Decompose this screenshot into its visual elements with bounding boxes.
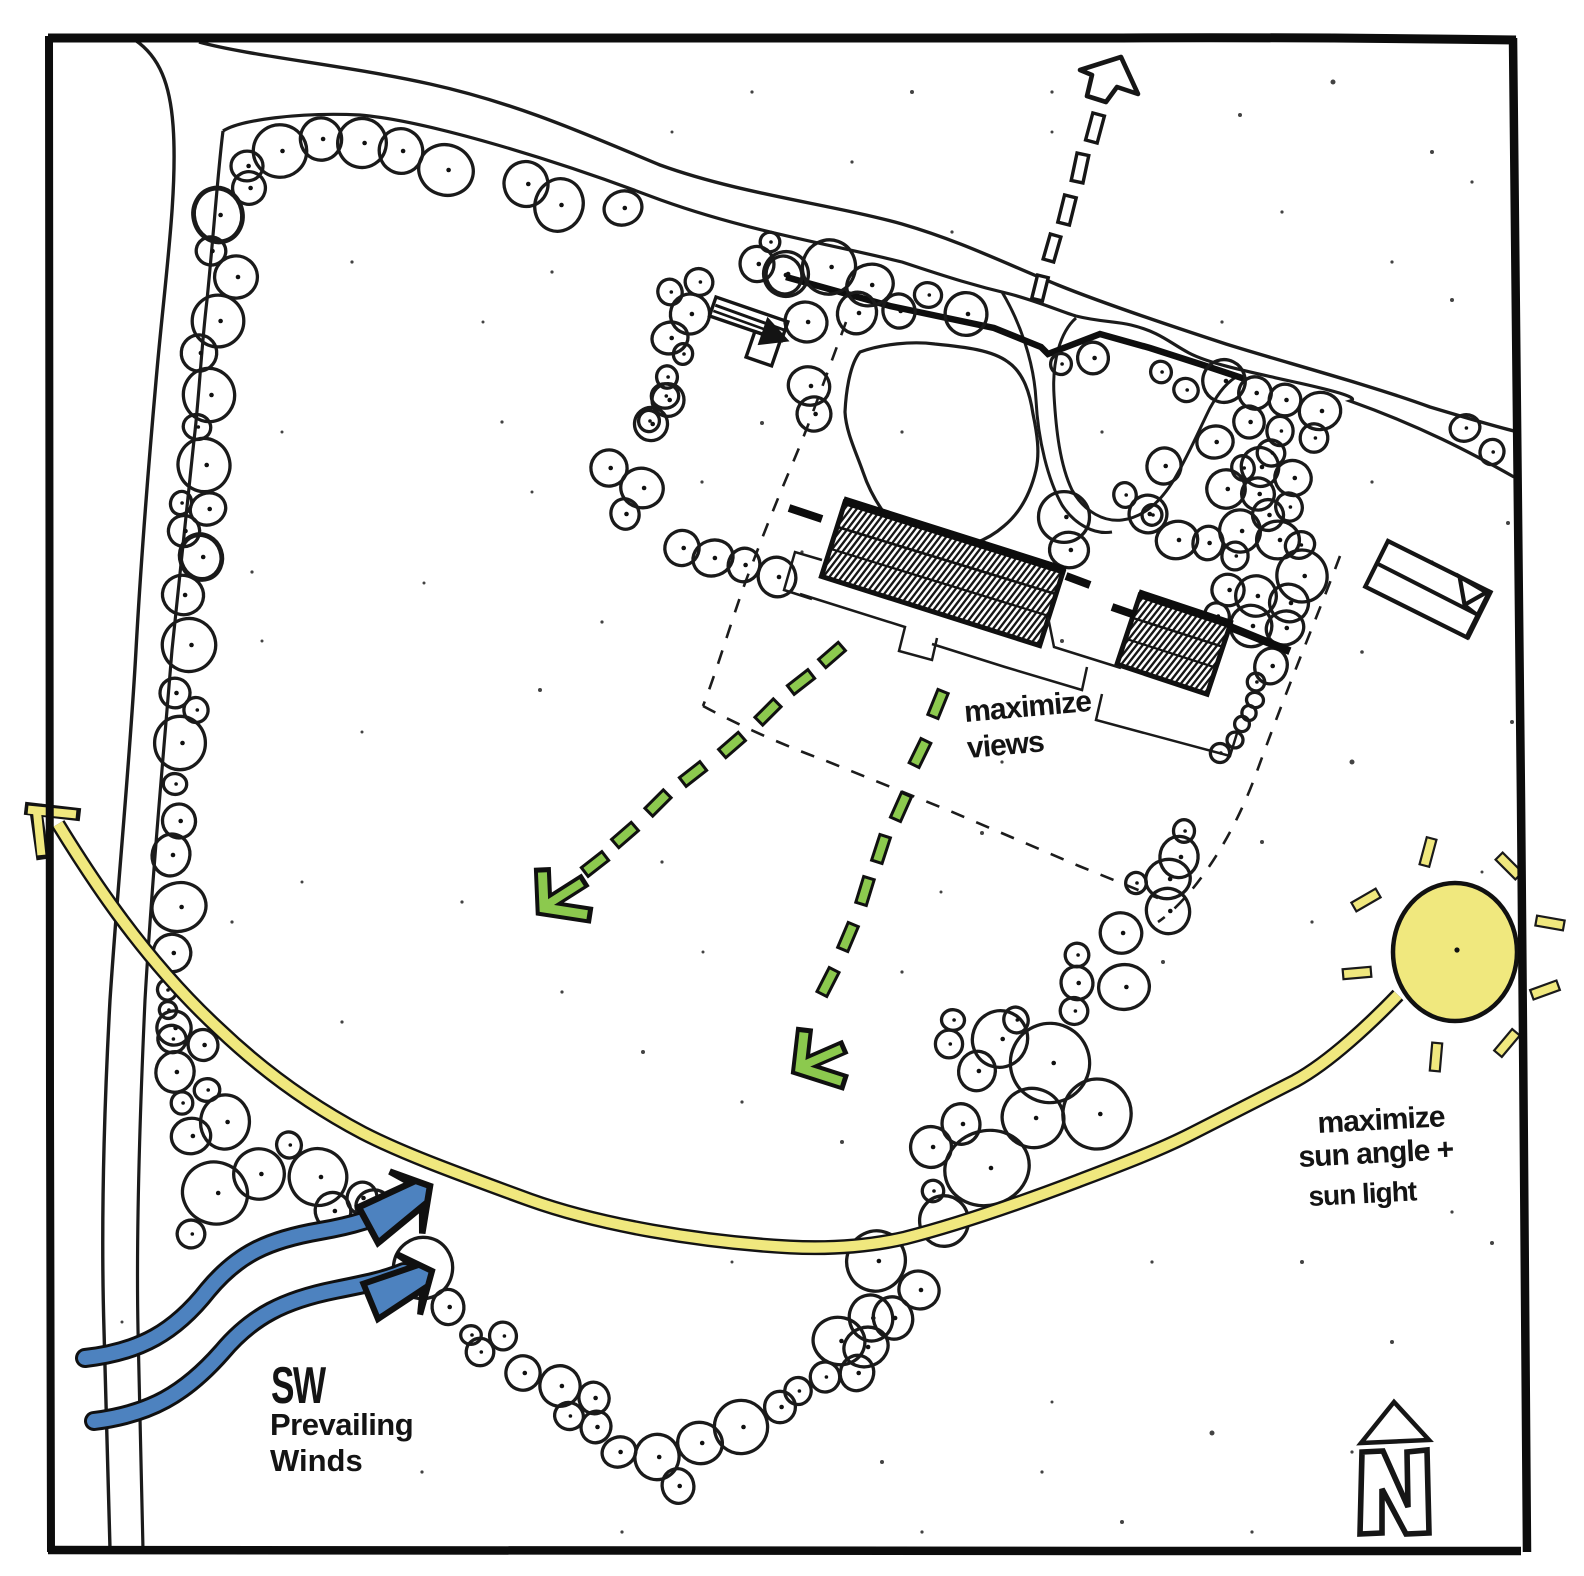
svg-text:sun light: sun light — [1308, 1175, 1418, 1212]
svg-text:Winds: Winds — [270, 1443, 363, 1478]
svg-text:views: views — [966, 725, 1046, 765]
svg-text:Prevailing: Prevailing — [270, 1407, 413, 1442]
